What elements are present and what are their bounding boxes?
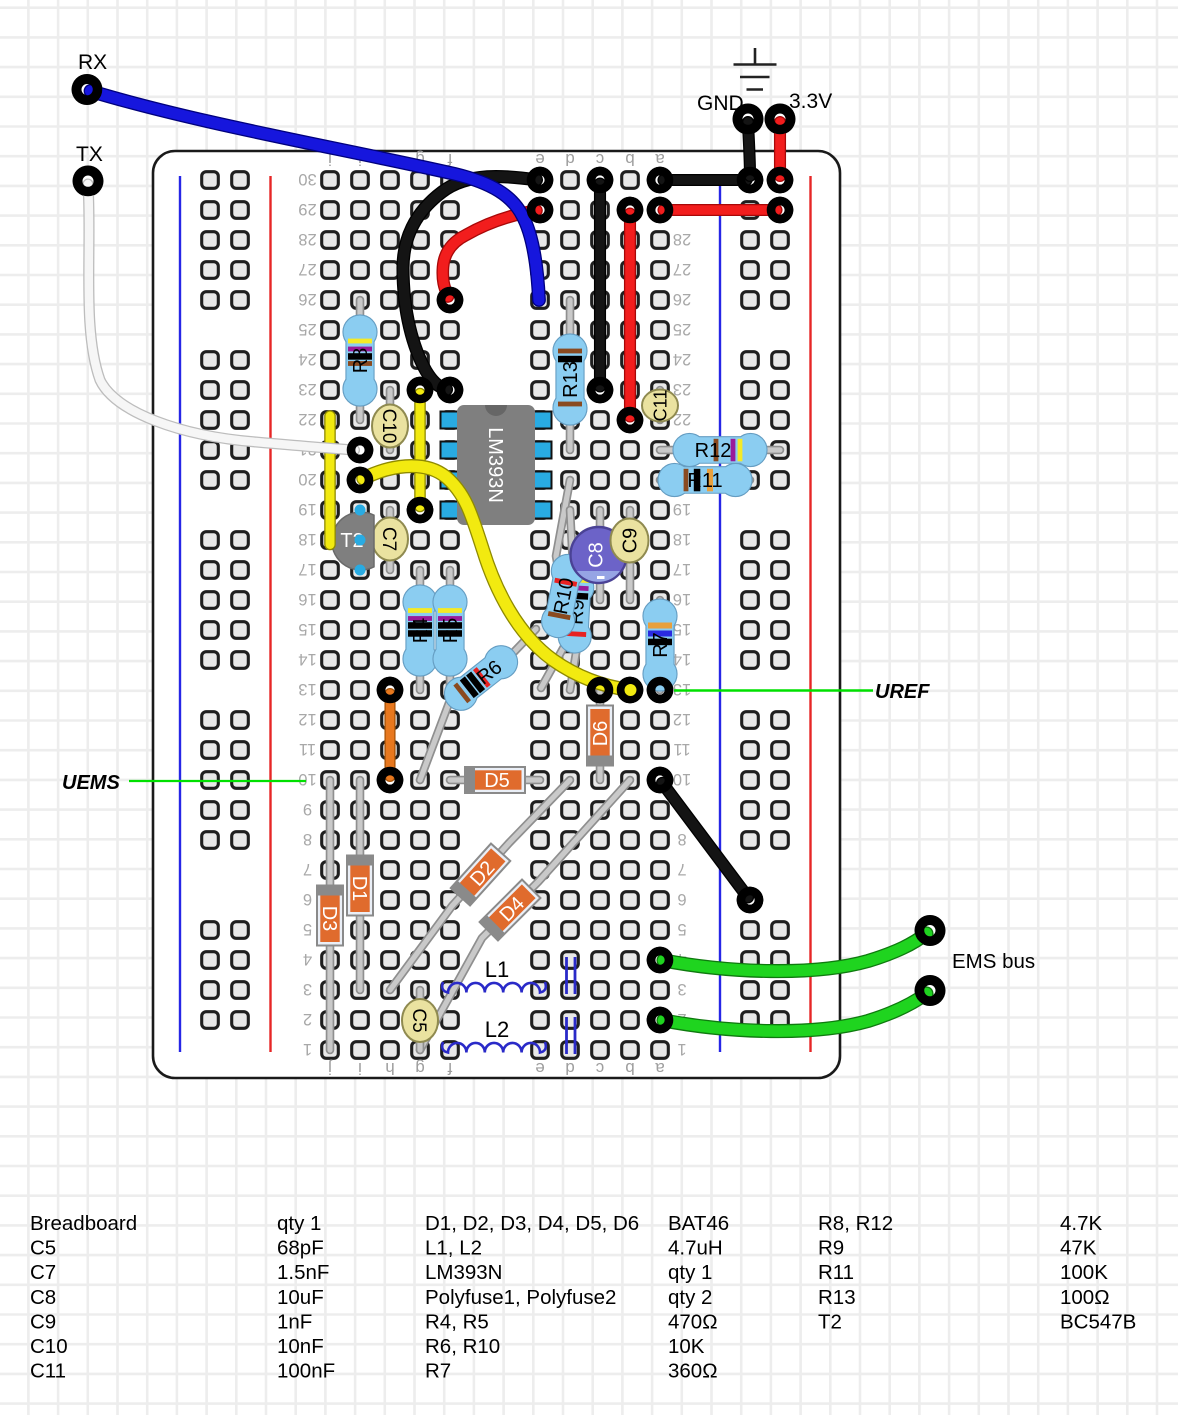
- svg-text:12: 12: [673, 710, 691, 728]
- svg-text:C7: C7: [378, 527, 399, 551]
- svg-text:e: e: [535, 1059, 544, 1078]
- svg-text:10: 10: [673, 770, 691, 788]
- svg-text:19: 19: [673, 500, 691, 518]
- svg-text:d: d: [565, 150, 574, 169]
- svg-text:Polyfuse1, Polyfuse2: Polyfuse1, Polyfuse2: [425, 1286, 616, 1309]
- svg-text:22: 22: [298, 410, 316, 428]
- svg-text:10K: 10K: [668, 1335, 705, 1358]
- svg-text:17: 17: [298, 560, 316, 578]
- svg-text:7: 7: [677, 860, 686, 878]
- svg-text:10: 10: [298, 770, 316, 788]
- svg-text:j: j: [328, 1059, 333, 1078]
- svg-text:26: 26: [673, 290, 691, 308]
- svg-text:23: 23: [673, 380, 691, 398]
- svg-text:R7: R7: [650, 632, 672, 658]
- svg-text:3: 3: [303, 980, 312, 998]
- svg-text:6: 6: [303, 890, 312, 908]
- svg-text:R11: R11: [687, 470, 722, 492]
- svg-text:R11: R11: [818, 1261, 854, 1284]
- svg-text:C10: C10: [378, 409, 399, 444]
- svg-text:R13: R13: [560, 361, 582, 398]
- svg-text:C10: C10: [30, 1335, 68, 1358]
- svg-text:4.7K: 4.7K: [1060, 1212, 1102, 1235]
- svg-text:19: 19: [298, 500, 316, 518]
- svg-text:b: b: [625, 150, 634, 169]
- svg-text:e: e: [535, 150, 544, 169]
- svg-text:7: 7: [303, 860, 312, 878]
- svg-text:i: i: [358, 1059, 362, 1078]
- svg-text:g: g: [415, 1059, 424, 1078]
- svg-text:3.3V: 3.3V: [789, 90, 832, 113]
- svg-text:25: 25: [298, 320, 316, 338]
- svg-text:1.5nF: 1.5nF: [277, 1261, 329, 1284]
- svg-text:28: 28: [673, 230, 691, 248]
- svg-text:360Ω: 360Ω: [668, 1360, 718, 1383]
- svg-text:f: f: [447, 1059, 452, 1078]
- svg-text:c: c: [595, 1059, 604, 1078]
- svg-text:D1: D1: [348, 876, 370, 902]
- svg-text:24: 24: [298, 350, 316, 368]
- svg-text:C5: C5: [30, 1237, 56, 1260]
- svg-text:16: 16: [298, 590, 316, 608]
- svg-text:b: b: [625, 1059, 634, 1078]
- svg-text:C11: C11: [30, 1360, 66, 1383]
- svg-text:100K: 100K: [1060, 1261, 1108, 1284]
- svg-text:LM393N: LM393N: [425, 1261, 503, 1284]
- svg-text:C7: C7: [30, 1261, 56, 1284]
- svg-text:5: 5: [303, 920, 312, 938]
- svg-text:a: a: [655, 150, 665, 169]
- svg-text:2: 2: [303, 1010, 312, 1028]
- svg-text:R13: R13: [818, 1286, 856, 1309]
- svg-text:1nF: 1nF: [277, 1310, 312, 1333]
- svg-text:1: 1: [303, 1040, 312, 1058]
- svg-text:100nF: 100nF: [277, 1360, 335, 1383]
- svg-text:a: a: [655, 1059, 665, 1078]
- svg-text:L1, L2: L1, L2: [425, 1237, 482, 1260]
- svg-text:R12: R12: [695, 440, 732, 462]
- svg-text:R8, R12: R8, R12: [818, 1212, 893, 1235]
- svg-text:L2: L2: [485, 1017, 509, 1042]
- svg-text:4: 4: [303, 950, 312, 968]
- svg-text:UEMS: UEMS: [62, 772, 120, 794]
- svg-text:D6: D6: [590, 721, 612, 747]
- svg-text:47K: 47K: [1060, 1237, 1097, 1260]
- svg-text:LM393N: LM393N: [484, 427, 506, 503]
- svg-text:C8: C8: [30, 1286, 56, 1309]
- svg-text:1: 1: [677, 1040, 686, 1058]
- svg-text:D1, D2, D3, D4, D5, D6: D1, D2, D3, D4, D5, D6: [425, 1212, 639, 1235]
- svg-text:11: 11: [673, 740, 690, 758]
- svg-text:C5: C5: [408, 1008, 429, 1032]
- svg-text:27: 27: [298, 260, 316, 278]
- svg-text:qty 1: qty 1: [277, 1212, 321, 1235]
- svg-text:D3: D3: [318, 906, 340, 932]
- svg-text:R6, R10: R6, R10: [425, 1335, 500, 1358]
- svg-text:30: 30: [298, 170, 316, 188]
- svg-text:T2: T2: [818, 1310, 842, 1333]
- svg-text:TX: TX: [76, 143, 103, 166]
- svg-text:13: 13: [298, 680, 316, 698]
- svg-text:UREF: UREF: [875, 681, 930, 703]
- svg-text:27: 27: [673, 260, 691, 278]
- svg-text:470Ω: 470Ω: [668, 1310, 718, 1333]
- svg-text:13: 13: [673, 680, 691, 698]
- svg-text:h: h: [385, 1059, 394, 1078]
- svg-text:28: 28: [298, 230, 316, 248]
- svg-text:D5: D5: [484, 770, 510, 792]
- svg-text:RX: RX: [78, 51, 107, 74]
- svg-text:18: 18: [298, 530, 316, 548]
- svg-text:9: 9: [303, 800, 312, 818]
- svg-text:24: 24: [673, 350, 691, 368]
- svg-text:12: 12: [298, 710, 316, 728]
- svg-text:C9: C9: [620, 528, 642, 554]
- svg-text:26: 26: [298, 290, 316, 308]
- svg-text:18: 18: [673, 530, 691, 548]
- svg-text:BC547B: BC547B: [1060, 1310, 1136, 1333]
- svg-text:C8: C8: [586, 542, 608, 568]
- svg-text:3: 3: [677, 980, 686, 998]
- svg-text:L1: L1: [485, 957, 509, 982]
- svg-text:Breadboard: Breadboard: [30, 1212, 137, 1235]
- svg-text:20: 20: [298, 470, 316, 488]
- svg-text:23: 23: [298, 380, 316, 398]
- svg-text:16: 16: [673, 590, 691, 608]
- svg-text:C11: C11: [651, 390, 671, 422]
- svg-text:qty 1: qty 1: [668, 1261, 712, 1284]
- svg-text:29: 29: [298, 200, 316, 218]
- svg-text:10uF: 10uF: [277, 1286, 324, 1309]
- svg-text:R8: R8: [350, 348, 372, 374]
- svg-text:5: 5: [677, 920, 686, 938]
- svg-text:GND: GND: [697, 92, 744, 115]
- svg-text:10nF: 10nF: [277, 1335, 324, 1358]
- svg-text:17: 17: [673, 560, 691, 578]
- svg-text:14: 14: [298, 650, 316, 668]
- svg-text:100Ω: 100Ω: [1060, 1286, 1110, 1309]
- svg-text:R4: R4: [410, 618, 432, 644]
- svg-text:c: c: [595, 150, 604, 169]
- svg-text:d: d: [565, 1059, 574, 1078]
- svg-text:15: 15: [298, 620, 316, 638]
- svg-text:C9: C9: [30, 1310, 56, 1333]
- svg-text:BAT46: BAT46: [668, 1212, 729, 1235]
- svg-text:68pF: 68pF: [277, 1237, 324, 1260]
- svg-text:14: 14: [673, 650, 691, 668]
- svg-text:8: 8: [303, 830, 312, 848]
- svg-text:11: 11: [299, 740, 316, 758]
- svg-text:4.7uH: 4.7uH: [668, 1237, 723, 1260]
- svg-text:qty 2: qty 2: [668, 1286, 712, 1309]
- svg-text:R9: R9: [818, 1237, 844, 1260]
- svg-text:R5: R5: [440, 618, 462, 644]
- svg-text:R7: R7: [425, 1360, 451, 1383]
- svg-text:EMS bus: EMS bus: [952, 950, 1035, 973]
- svg-text:6: 6: [677, 890, 686, 908]
- svg-text:R4, R5: R4, R5: [425, 1310, 489, 1333]
- svg-text:25: 25: [673, 320, 691, 338]
- svg-text:8: 8: [677, 830, 686, 848]
